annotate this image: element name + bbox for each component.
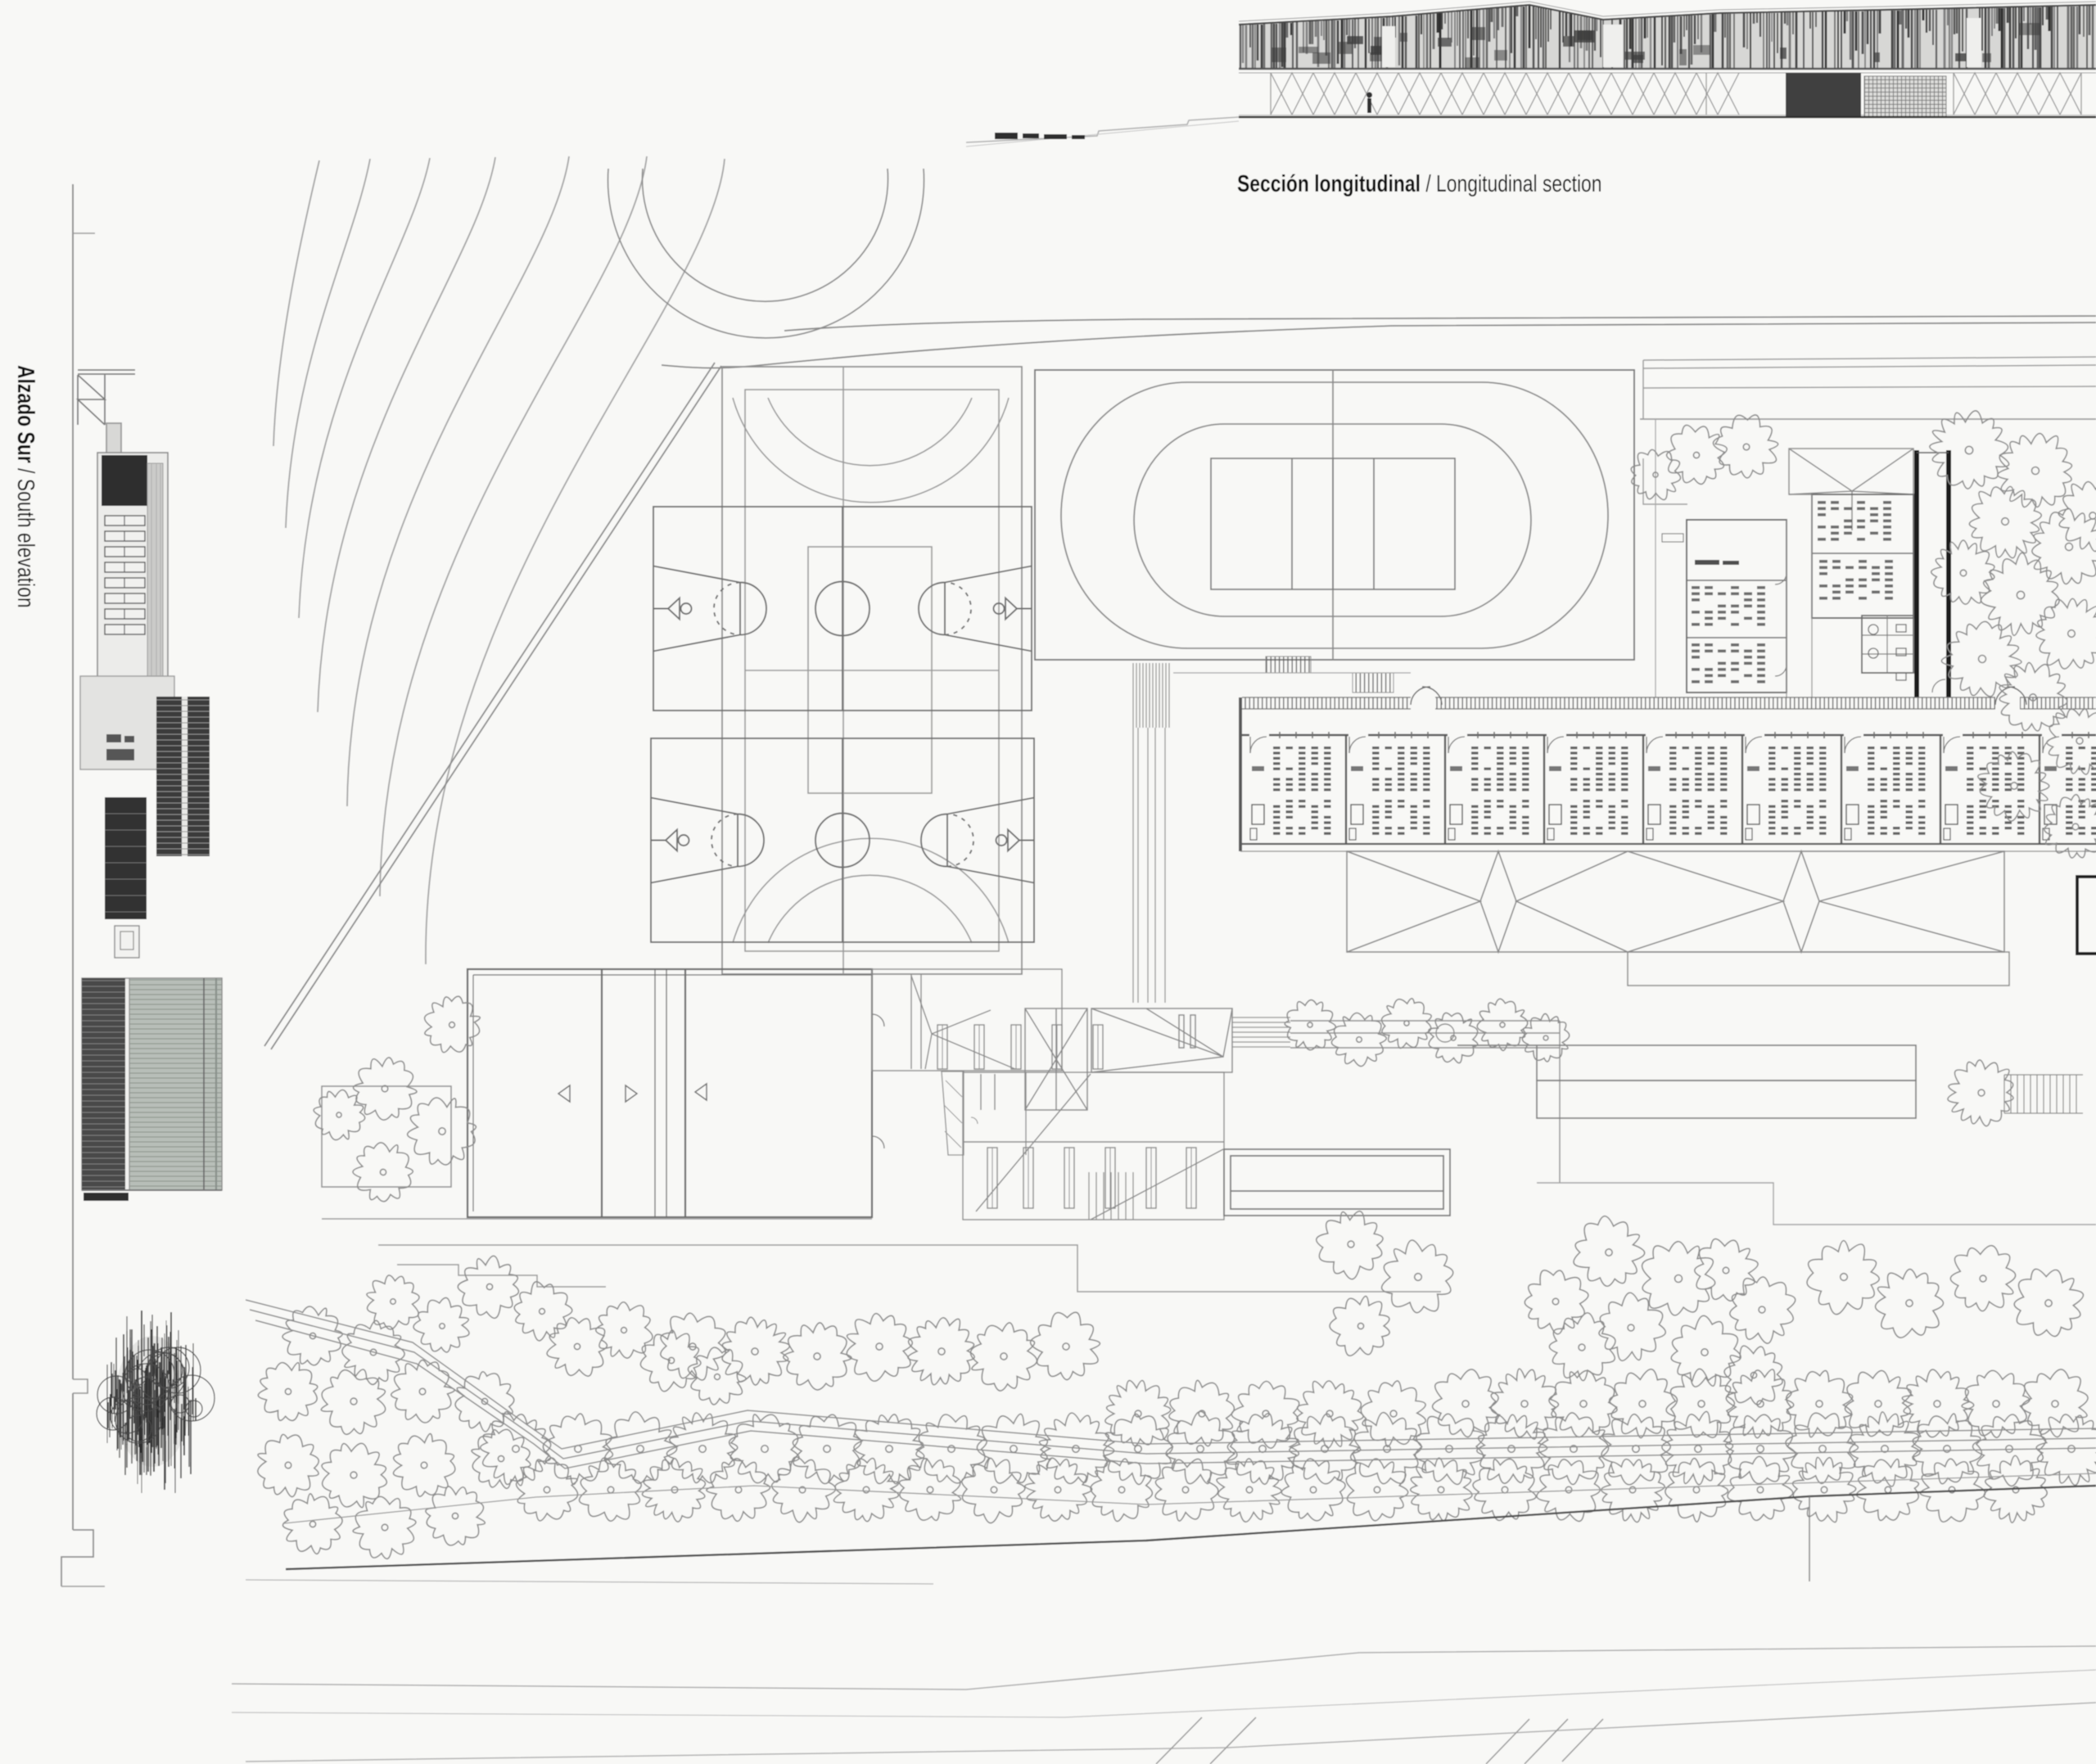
svg-text:Sección longitudinal / Longitu: Sección longitudinal / Longitudinal sect… — [1237, 169, 1602, 196]
svg-text:Alzado Sur / South elevation: Alzado Sur / South elevation — [12, 365, 39, 608]
